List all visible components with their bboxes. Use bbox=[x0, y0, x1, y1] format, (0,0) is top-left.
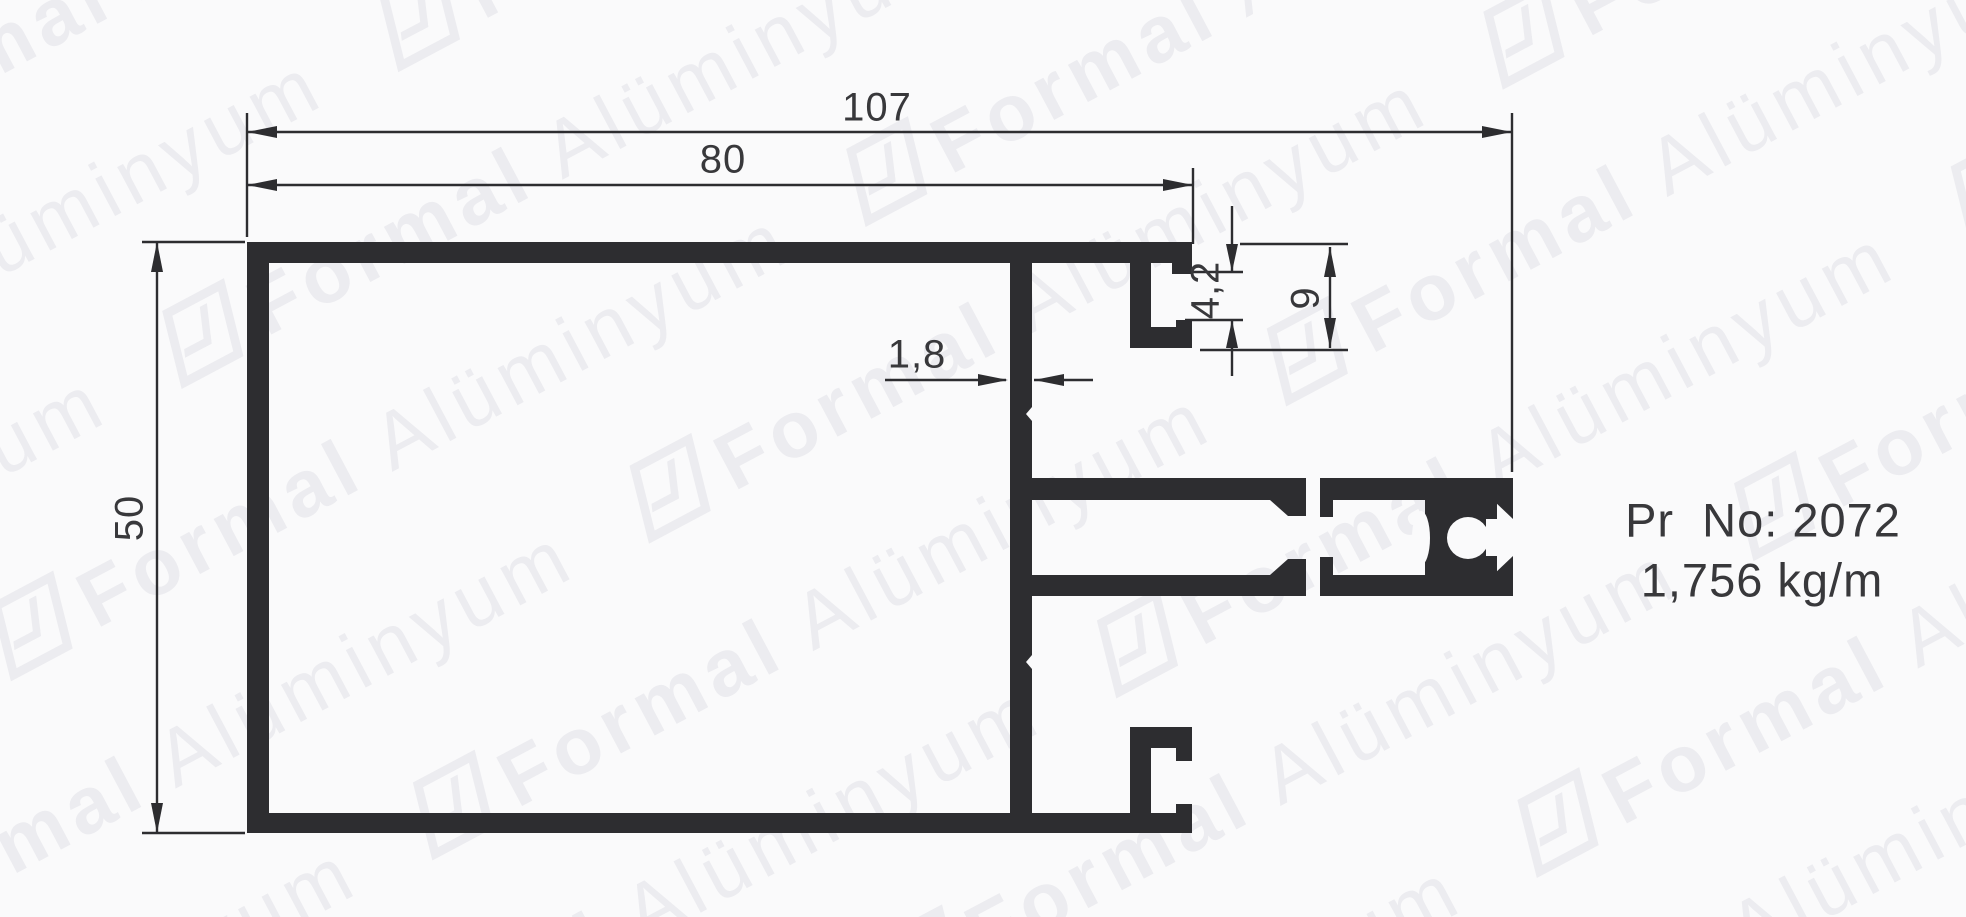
dim-label-height: 50 bbox=[108, 495, 153, 542]
arrow-18-left bbox=[978, 374, 1008, 386]
dim-label-inner-width: 80 bbox=[700, 138, 747, 183]
arrow-50-top bbox=[151, 242, 163, 272]
end-block-upper-bar bbox=[1320, 478, 1513, 500]
screw-port-opening bbox=[1486, 519, 1522, 556]
bottom-channel-bar bbox=[1130, 727, 1192, 748]
arrow-50-bottom bbox=[151, 803, 163, 833]
dim-label-channel-height: 9 bbox=[1284, 286, 1329, 309]
bottom-channel-lower-lip bbox=[1176, 804, 1192, 814]
main-right-wall bbox=[1010, 263, 1032, 813]
upper-arm-nose bbox=[1270, 500, 1306, 516]
screw-port-hole bbox=[1447, 517, 1489, 559]
lower-arm bbox=[1032, 575, 1306, 596]
top-channel-lower-lip bbox=[1176, 320, 1192, 332]
dimension-arrowheads bbox=[151, 126, 1512, 833]
top-flange bbox=[247, 242, 1192, 263]
arrow-80-left bbox=[247, 179, 277, 191]
dim-label-wall-thickness: 1,8 bbox=[888, 333, 947, 378]
profile-drawing-svg bbox=[0, 0, 1966, 917]
arrow-9-top bbox=[1324, 247, 1336, 277]
lower-arm-nose bbox=[1270, 559, 1306, 575]
dim-label-total-width: 107 bbox=[842, 86, 912, 131]
profile-cutouts bbox=[1026, 407, 1522, 669]
profile-cross-section bbox=[247, 242, 1513, 833]
profile-weight-label: 1,756 kg/m bbox=[1641, 553, 1884, 608]
arrow-107-right bbox=[1482, 126, 1512, 138]
web-concavity bbox=[1412, 511, 1430, 565]
technical-drawing-canvas: FormalAlüminyumFormalAlüminyumFormalAlüm… bbox=[0, 0, 1966, 917]
end-block-upper-lip bbox=[1320, 478, 1333, 517]
end-block-lower-lip bbox=[1320, 557, 1333, 596]
arrow-42-bottom bbox=[1226, 320, 1238, 348]
bottom-flange bbox=[247, 813, 1192, 833]
profile-number-label: Pr No: 2072 bbox=[1625, 493, 1901, 548]
end-block-lower-bar bbox=[1320, 575, 1513, 596]
arrow-9-bottom bbox=[1324, 318, 1336, 348]
arrow-80-right bbox=[1163, 179, 1193, 191]
arrow-107-left bbox=[247, 126, 277, 138]
arrow-18-right bbox=[1034, 374, 1064, 386]
dim-label-groove-gap: 4,2 bbox=[1184, 261, 1229, 320]
dimension-lines bbox=[142, 113, 1512, 833]
upper-arm bbox=[1032, 478, 1306, 500]
left-wall bbox=[247, 263, 269, 813]
bottom-channel-upper-lip bbox=[1176, 745, 1192, 761]
